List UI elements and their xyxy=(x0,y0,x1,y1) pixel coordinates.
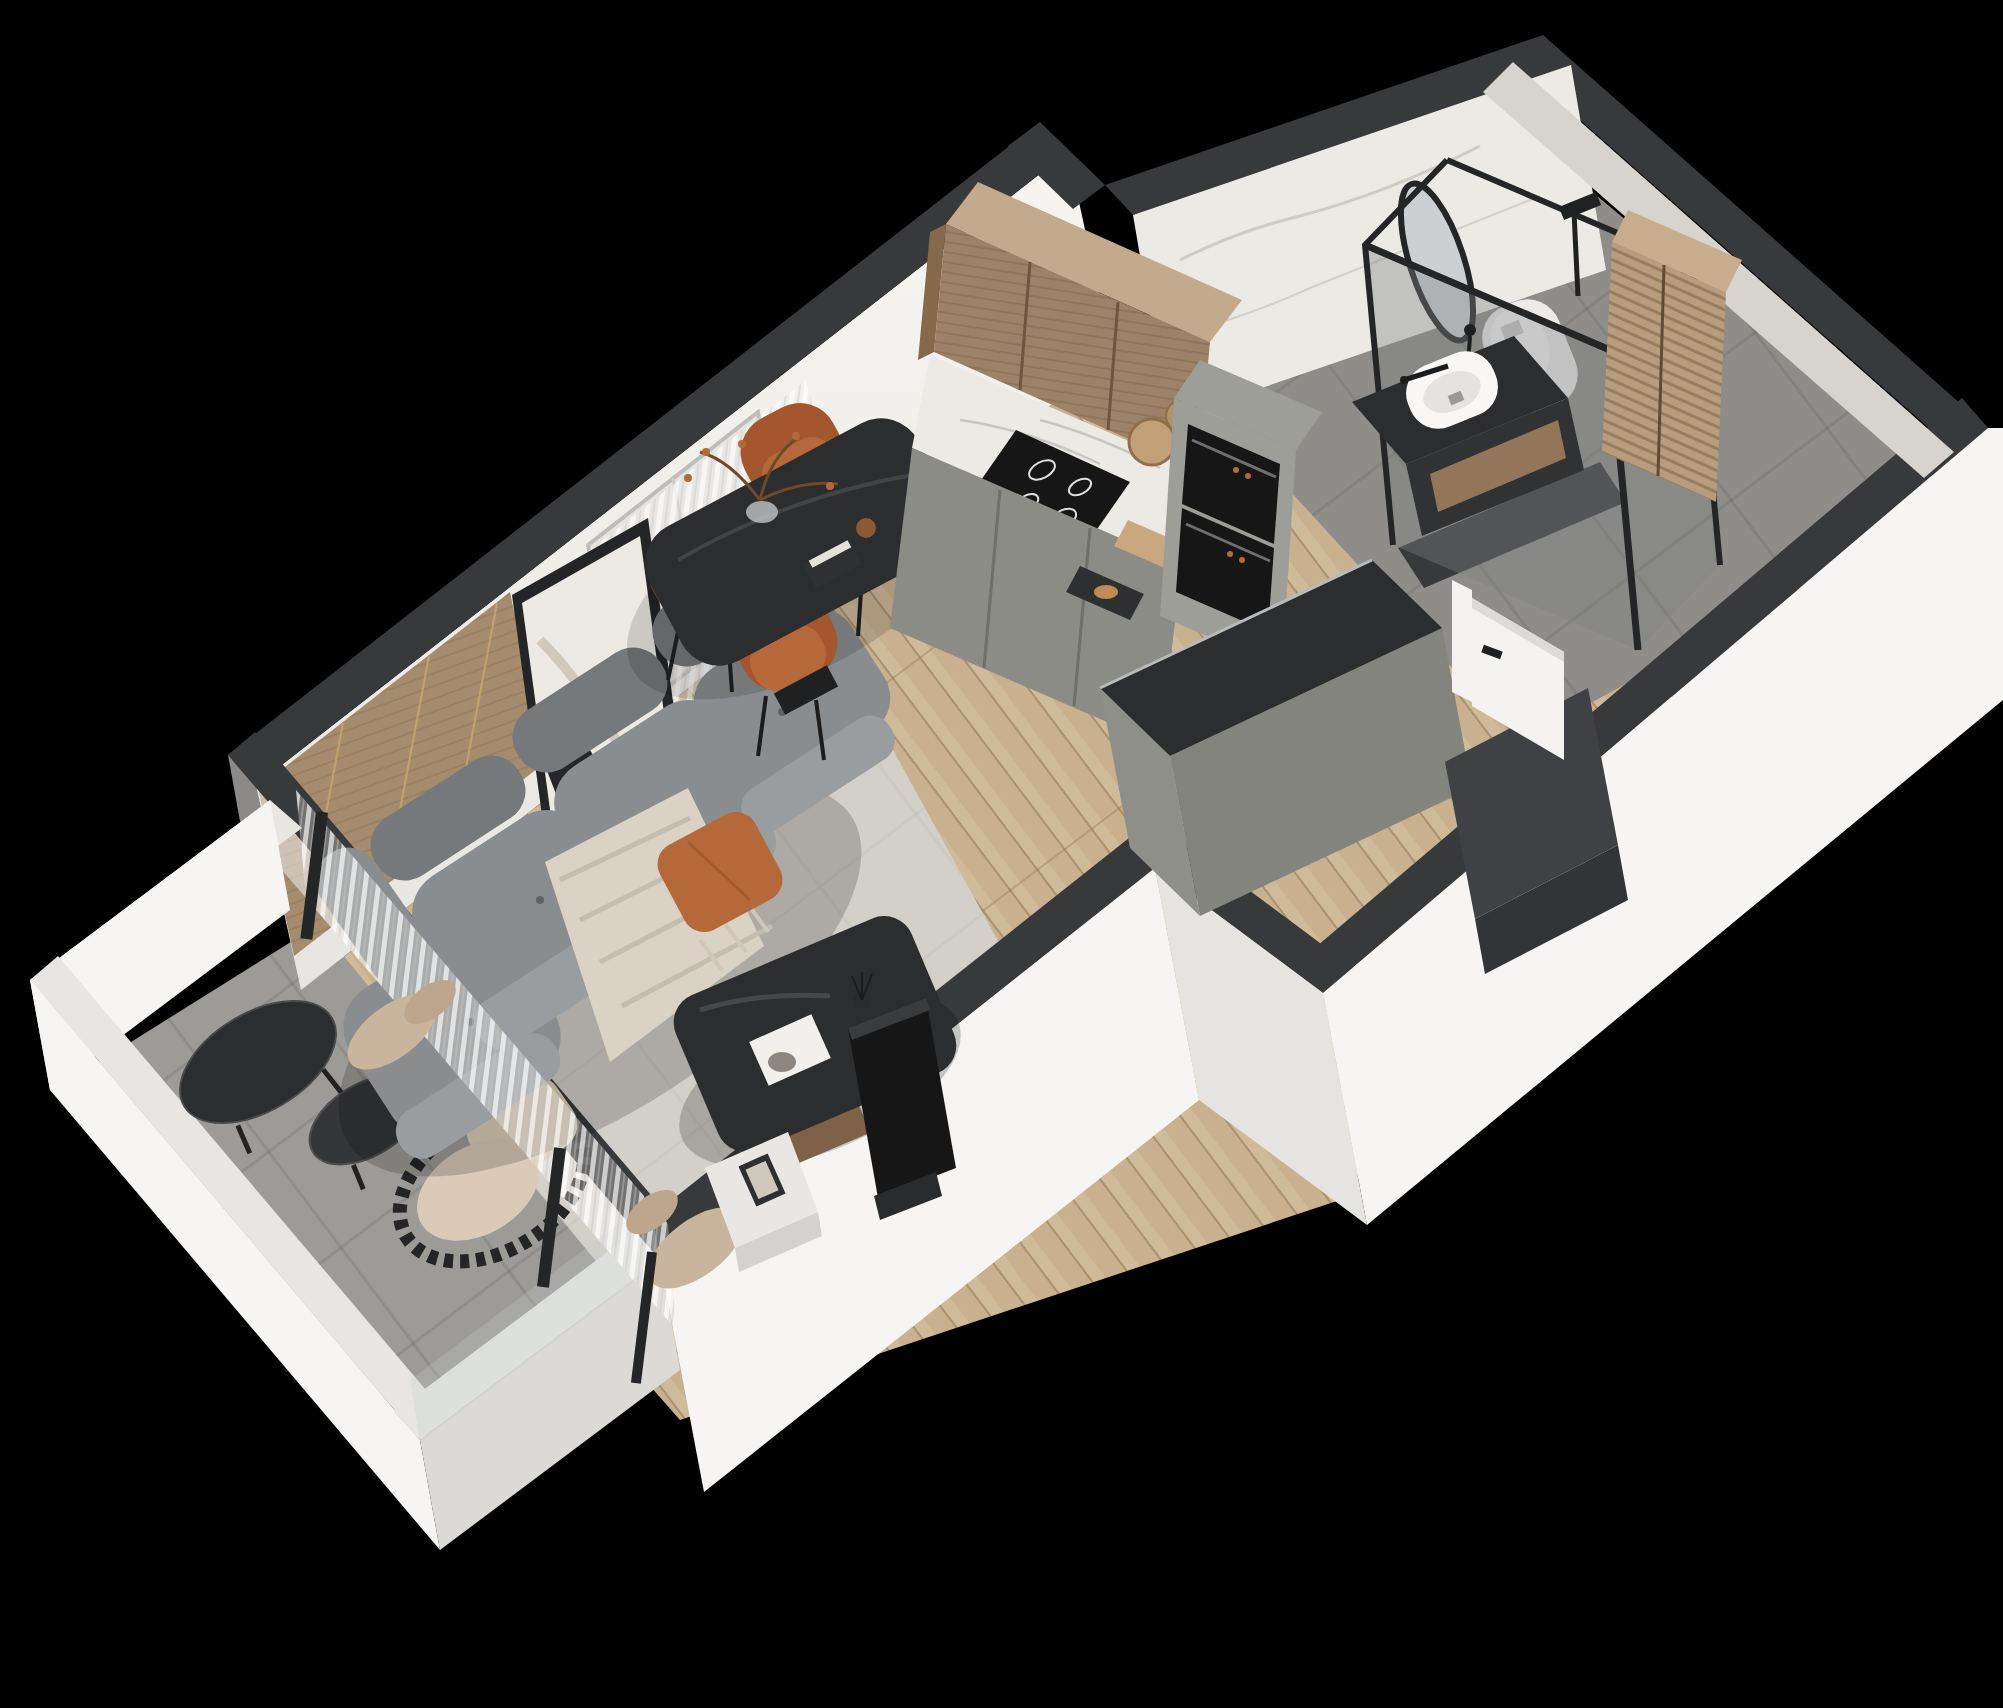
floorplan-svg xyxy=(0,0,2003,1708)
magazine-photo xyxy=(768,1052,796,1072)
bread xyxy=(1094,585,1118,599)
floorplan-render xyxy=(0,0,2003,1708)
glass-vase xyxy=(746,501,778,523)
bowl-decor xyxy=(856,518,876,538)
shower-mixer xyxy=(1464,324,1476,336)
cutting-board xyxy=(1129,419,1175,465)
faucet-base xyxy=(1400,376,1408,384)
tuft xyxy=(536,896,544,904)
door-jamb xyxy=(1452,580,1472,702)
